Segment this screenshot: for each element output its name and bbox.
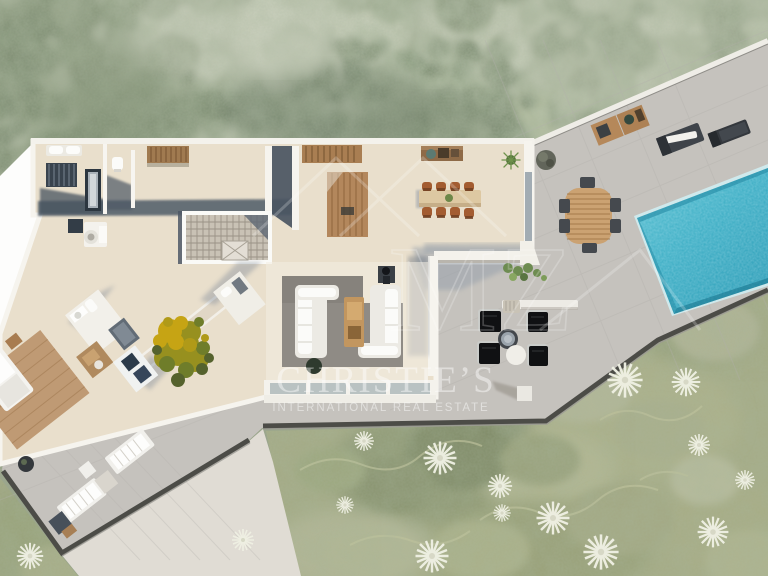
svg-text:INTERNATIONAL REAL ESTATE: INTERNATIONAL REAL ESTATE: [272, 402, 489, 414]
svg-text:CHRISTIE’S: CHRISTIE’S: [276, 360, 495, 401]
svg-text:MZ: MZ: [389, 222, 576, 357]
